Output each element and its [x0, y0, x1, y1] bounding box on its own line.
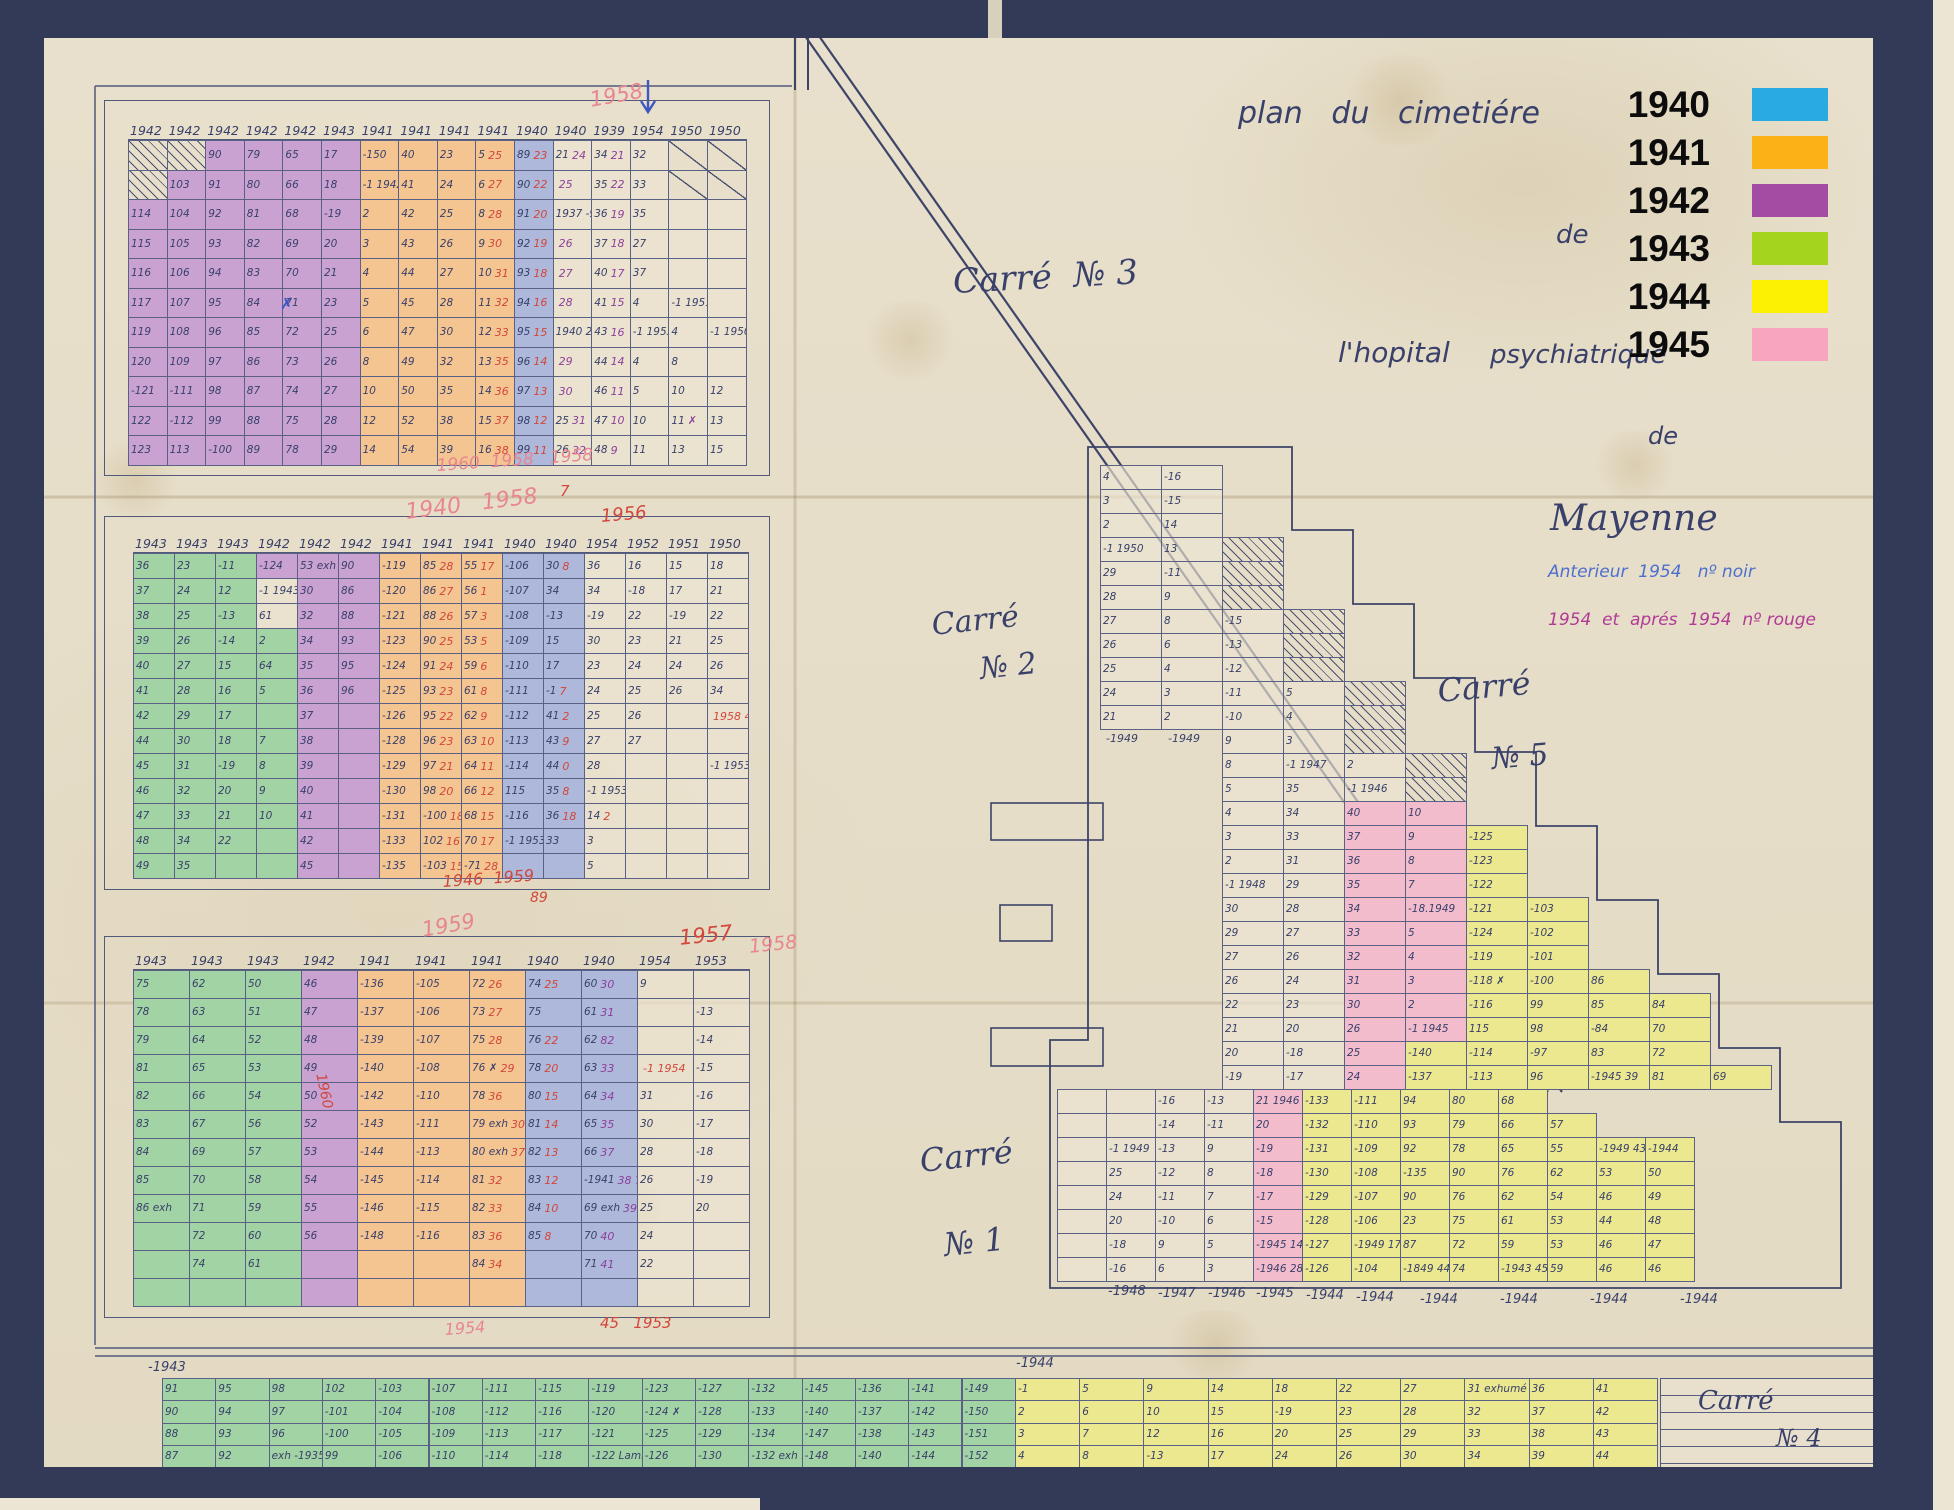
carre5-cell: -122: [1466, 873, 1528, 898]
grid-carre1-cell: -110: [413, 1082, 470, 1111]
strip-green-carre4-cell: -100: [322, 1423, 376, 1446]
grid-carre3-cell: 27: [630, 229, 670, 260]
grid-carre2-cell: 21: [215, 803, 257, 829]
grid-carre1-cell: 80 exh37: [469, 1138, 526, 1167]
grid-carre1-cell: 69: [189, 1138, 246, 1167]
grid-carre1-cell: 8132: [469, 1166, 526, 1195]
grid-carre2-cell: 24: [584, 678, 626, 704]
grid-carre2-cell: [625, 803, 667, 829]
grid-carre3-cell: 21: [321, 258, 361, 289]
carre5-cell: -123: [1466, 849, 1528, 874]
carre5-cell: 20: [1106, 1209, 1156, 1234]
grid-carre2-cell: -121: [379, 603, 421, 629]
strip-yellow-carre4-cell: -1: [1015, 1378, 1080, 1401]
grid-carre2-cell: 27: [625, 728, 667, 754]
carre5-cell: -18: [1253, 1161, 1303, 1186]
grid-carre1-year-header: 1942: [301, 948, 358, 970]
carre5-cell: 79: [1449, 1113, 1499, 1138]
grid-carre2-cell: 34: [707, 678, 749, 704]
grid-carre1-cell: 858: [525, 1222, 582, 1251]
grid-carre3-year-header: 1942: [167, 118, 207, 140]
grid-carre2-cell: 48: [133, 828, 175, 854]
grid-carre3-cell: 9416: [514, 288, 554, 319]
strip-green-carre4-cell: -128: [695, 1400, 749, 1423]
grid-carre2-cell: 440: [543, 753, 585, 779]
grid-carre3-cell: 26: [553, 229, 593, 260]
grid-carre2-cell: [707, 803, 749, 829]
grid-carre3-cell: 89: [244, 435, 284, 466]
carre5-cell: 27: [1100, 609, 1162, 634]
grid-carre3-cell: 106: [167, 258, 207, 289]
grid-carre2-cell: [256, 828, 298, 854]
grid-carre1-cell: 30: [637, 1110, 694, 1139]
carre5-cell: 8: [1161, 609, 1223, 634]
grid-carre3-cell: 35: [630, 199, 670, 230]
grid-carre2-cell: -106: [502, 553, 544, 579]
grid-carre2-cell: [666, 853, 708, 879]
grid-carre2-year-header: 1941: [420, 533, 462, 553]
strip-yellow-carre4-cell: 32: [1464, 1400, 1529, 1423]
strip-green-carre4-cell: -152: [962, 1445, 1016, 1468]
carre5-cell: 29: [1283, 873, 1345, 898]
carre5-cell: -16: [1161, 465, 1223, 490]
grid-carre3-cell: 29: [321, 435, 361, 466]
grid-carre1-cell: 7622: [525, 1026, 582, 1055]
strip-green-carre4-cell: 94: [215, 1400, 269, 1423]
grid-carre1-cell: 54: [245, 1082, 302, 1111]
grid-carre2-cell: 9323: [420, 678, 462, 704]
carre5-cell: 3: [1204, 1257, 1254, 1282]
carre5-cell: -1946 28: [1253, 1257, 1303, 1282]
grid-carre2-cell: 41: [297, 803, 339, 829]
grid-carre3-cell: 44: [398, 258, 438, 289]
grid-carre1-cell: [469, 1278, 526, 1307]
strip-green-carre4-cell: 87: [162, 1445, 216, 1468]
grid-carre2-cell: 25: [174, 603, 216, 629]
grid-carre1-cell: -148: [357, 1222, 414, 1251]
grid-carre3-cell: 1031: [475, 258, 515, 289]
grid-carre2-cell: [707, 853, 749, 879]
carre5-cell: -125: [1466, 825, 1528, 850]
grid-carre2-cell: [215, 853, 257, 879]
carre5-col-1945: -1945: [1256, 1286, 1294, 1301]
grid-carre2-cell: 40: [133, 653, 175, 679]
strip-green-carre4-cell: 97: [269, 1400, 323, 1423]
grid-carre3-year-header: 1950: [668, 118, 708, 140]
grid-carre3-cell: [707, 170, 747, 201]
grid-carre2-cell: 34: [297, 628, 339, 654]
grid-carre3-year-header: 1942: [244, 118, 284, 140]
grid-carre3-cell: 9614: [514, 347, 554, 378]
grid-carre2-cell: [256, 853, 298, 879]
carre5-cell: 34: [1283, 801, 1345, 826]
grid-carre3-cell: 84: [244, 288, 284, 319]
grid-carre2-year-header: 1942: [297, 533, 339, 553]
grid-carre3-cell: 119: [128, 317, 168, 348]
grid-carre2-cell: 23: [584, 653, 626, 679]
grid-carre2-cell: 26: [666, 678, 708, 704]
grid-carre2-year-header: 1951: [666, 533, 708, 553]
grid-carre2-cell: 42: [133, 703, 175, 729]
grid-carre1-cell: 20: [693, 1194, 750, 1223]
grid-carre1-cell: [133, 1250, 190, 1279]
grid-carre2-cell: 30: [584, 628, 626, 654]
grid-carre3-cell: 4: [360, 258, 400, 289]
strip-yellow-carre4-cell: 43: [1593, 1423, 1658, 1446]
grid-carre2-year-header: 1940: [502, 533, 544, 553]
strip-yellow-carre4-cell: 28: [1400, 1400, 1465, 1423]
grid-carre2-cell: [338, 703, 380, 729]
grid-carre2-cell: 41: [133, 678, 175, 704]
grid-carre2-cell: 22: [707, 603, 749, 629]
grid-carre2-cell: 9025: [420, 628, 462, 654]
strip-top-rules: [95, 1348, 1875, 1356]
grid-carre3-cell: 14: [360, 435, 400, 466]
carre5-cell: 4: [1161, 657, 1223, 682]
grid-carre3-cell: 8: [360, 347, 400, 378]
strip-green-carre4-cell: -145: [802, 1378, 856, 1401]
carre5-cell: 27: [1283, 921, 1345, 946]
grid-carre3-cell: 10: [668, 376, 708, 407]
carre5-col-1944e: -1944: [1590, 1292, 1628, 1307]
grid-carre1-cell: 79 exh30: [469, 1110, 526, 1139]
grid-carre2-cell: 412: [543, 703, 585, 729]
grid-carre3-cell: 8: [668, 347, 708, 378]
grid-carre2-cell: -110: [502, 653, 544, 679]
strip-yellow-carre4-cell: 10: [1143, 1400, 1208, 1423]
strip-green-carre4-cell: -121: [588, 1423, 642, 1446]
border-fold-gap: [988, 0, 1002, 38]
grid-carre3-cell: 30: [553, 376, 593, 407]
carre5-cell: -1945 14: [1253, 1233, 1303, 1258]
grid-carre1-cell: 60: [245, 1222, 302, 1251]
grid-carre1-cell: 81: [133, 1054, 190, 1083]
grid-carre1-cell: -107: [413, 1026, 470, 1055]
grid-carre3-cell: 1132: [475, 288, 515, 319]
carre5-cell: -108: [1351, 1161, 1401, 1186]
carre5-cell: 3: [1161, 681, 1223, 706]
carre5-cell: [1057, 1209, 1107, 1234]
grid-carre2-cell: 561: [461, 578, 503, 604]
grid-carre3-cell: 28: [437, 288, 477, 319]
note-after-1954: 1954 et aprés 1954 nº rouge: [1548, 610, 1816, 630]
carre5-cell: 4: [1222, 801, 1284, 826]
carre5-cell: 30: [1222, 897, 1284, 922]
grid-carre2-cell: [338, 853, 380, 879]
carre5-cell: 21: [1100, 705, 1162, 730]
monument-rect: [991, 803, 1103, 840]
grid-carre3-cell: 4316: [591, 317, 631, 348]
grid-carre2-cell: 88: [338, 603, 380, 629]
carre5-cell: 14: [1161, 513, 1223, 538]
grid-carre2-cell: -128: [379, 728, 421, 754]
grid-carre1-cell: 52: [245, 1026, 302, 1055]
strip-yellow-carre4-cell: 26: [1336, 1445, 1401, 1468]
carre5-cell: 30: [1344, 993, 1406, 1018]
grid-carre3-cell: 117: [128, 288, 168, 319]
grid-carre2-cell: 20: [215, 778, 257, 804]
grid-carre3-cell: 74: [282, 376, 322, 407]
title-hopital: l'hopital: [1338, 336, 1450, 369]
carre5-cell: 26: [1283, 945, 1345, 970]
grid-carre2-cell: 629: [461, 703, 503, 729]
strip-yellow-carre4-cell: 20: [1272, 1423, 1337, 1446]
carre5-cell: 2: [1100, 513, 1162, 538]
grid-carre3-cell: 4: [630, 347, 670, 378]
grid-carre2-cell: 5: [584, 853, 626, 879]
grid-carre1-cell: 8015: [525, 1082, 582, 1111]
grid-carre3-cell: 3: [360, 229, 400, 260]
strip-green-carre4-cell: -129: [695, 1423, 749, 1446]
carre5-cell: [1222, 561, 1284, 586]
strip-green-carre4-cell: 95: [215, 1378, 269, 1401]
grid-carre2-cell: -112: [502, 703, 544, 729]
carre5-cell: -100: [1527, 969, 1589, 994]
carre5-cell: 78: [1449, 1137, 1499, 1162]
strip-yellow-carre4-cell: 44: [1593, 1445, 1658, 1468]
carre5-cell: -15: [1222, 609, 1284, 634]
grid-carre2-cell: 25: [584, 703, 626, 729]
grid-carre1-cell: -194138 74: [581, 1166, 638, 1195]
grid-carre3-cell: [668, 229, 708, 260]
grid-carre3-cell: 4: [668, 317, 708, 348]
grid-carre3-cell: 93: [205, 229, 245, 260]
strip-yellow-carre4-cell: 9: [1143, 1378, 1208, 1401]
grid-carre2-cell: 23: [174, 553, 216, 579]
grid-carre2-cell: 6612: [461, 778, 503, 804]
grid-carre2-cell: 90: [338, 553, 380, 579]
grid-carre3-cell: 4017: [591, 258, 631, 289]
strip-green-carre4-cell: 99: [322, 1445, 376, 1468]
carre5-cell: -13: [1155, 1137, 1205, 1162]
carre5-cell: -103: [1527, 897, 1589, 922]
grid-carre1-cell: 78: [133, 998, 190, 1027]
grid-carre1-cell: 7425: [525, 970, 582, 999]
strip-green-carre4-cell: -142: [908, 1400, 962, 1423]
grid-carre3-cell: 105: [167, 229, 207, 260]
grid-carre2-cell: 142: [584, 803, 626, 829]
grid-carre2-cell: [625, 753, 667, 779]
grid-carre1-cell: 7040: [581, 1222, 638, 1251]
carre5-cell: -10: [1155, 1209, 1205, 1234]
red-89-below-carre2: 89: [530, 890, 548, 906]
carre5-cell: [1106, 1089, 1156, 1114]
grid-carre1-cell: 6131: [581, 998, 638, 1027]
monument-rect: [1000, 905, 1052, 941]
carre5-cell: [1057, 1233, 1107, 1258]
grid-carre3-cell: 2531: [553, 406, 593, 437]
strip-green-carre4-cell: -133: [748, 1400, 802, 1423]
strip-green-carre4-cell: -119: [588, 1378, 642, 1401]
grid-carre1-cell: 7528: [469, 1026, 526, 1055]
strip-green-carre4-cell: -140: [802, 1400, 856, 1423]
carre5-cell: -127: [1302, 1233, 1352, 1258]
grid-carre1-cell: 74: [189, 1250, 246, 1279]
grid-carre1-cell: 51: [245, 998, 302, 1027]
carre5-cell: -17: [1253, 1185, 1303, 1210]
grid-carre1-cell: -18: [693, 1138, 750, 1167]
grid-carre3-cell: 82: [244, 229, 284, 260]
legend-swatch-1940: [1752, 88, 1828, 121]
grid-carre2-cell: -123: [379, 628, 421, 654]
grid-carre2-cell: -13: [543, 603, 585, 629]
carre5-cell: -124: [1466, 921, 1528, 946]
carre5-cell: -19: [1253, 1137, 1303, 1162]
grid-carre2-cell: 36: [133, 553, 175, 579]
carre5-cell: 84: [1649, 993, 1711, 1018]
grid-carre3-cell: 85: [244, 317, 284, 348]
grid-carre1-cell: -111: [413, 1110, 470, 1139]
grid-carre1-cell: [245, 1278, 302, 1307]
grid-carre3-cell: 120: [128, 347, 168, 378]
label-carre-4: Carré: [1698, 1386, 1774, 1416]
grid-carre1-cell: [301, 1250, 358, 1279]
carre5-cell: 62: [1498, 1185, 1548, 1210]
grid-carre2-cell: 10: [256, 803, 298, 829]
grid-carre1-cell: 69 exh39: [581, 1194, 638, 1223]
grid-carre3-cell: 28: [553, 288, 593, 319]
strip-yellow-carre4-cell: 15: [1208, 1400, 1273, 1423]
grid-carre1-cell: 7820: [525, 1054, 582, 1083]
grid-carre2-cell: 35: [174, 853, 216, 879]
strip-green-carre4-cell: exh -1935: [269, 1445, 323, 1468]
carre5-cell: 5: [1204, 1233, 1254, 1258]
grid-carre1-cell: 56: [245, 1110, 302, 1139]
carre5-cell: [1106, 1113, 1156, 1138]
grid-carre3-cell: 54: [398, 435, 438, 466]
grid-carre2-cell: -116: [502, 803, 544, 829]
grid-carre2-cell: -1 1953: [502, 828, 544, 854]
grid-carre2-cell: 6815: [461, 803, 503, 829]
grid-carre2-cell: 42: [297, 828, 339, 854]
grid-carre2-cell: -10018: [420, 803, 462, 829]
strip-green-carre4-cell: -126: [642, 1445, 696, 1468]
strip-yellow-carre4-cell: 16: [1208, 1423, 1273, 1446]
carre5-cell: 5: [1283, 681, 1345, 706]
title-line1: plan du cimetiére: [1238, 96, 1540, 131]
strip-green-carre4-cell: -123: [642, 1378, 696, 1401]
grid-carre2-cell: 358: [543, 778, 585, 804]
grid-carre3-cell: 95: [205, 288, 245, 319]
carre5-cell: -1 1946: [1344, 777, 1406, 802]
strip-yellow-carre4-cell: 33: [1464, 1423, 1529, 1446]
border-top: [0, 0, 1954, 38]
grid-carre1-cell: -145: [357, 1166, 414, 1195]
grid-carre1-cell: 8233: [469, 1194, 526, 1223]
strip-green-carre4-cell: -141: [908, 1378, 962, 1401]
carre5-cell: -19: [1222, 1065, 1284, 1090]
strip-green-carre4-cell: 96: [269, 1423, 323, 1446]
strip-green-carre4-cell: 90: [162, 1400, 216, 1423]
grid-carre3-cell: 3421: [591, 140, 631, 171]
grid-carre1-cell: [413, 1278, 470, 1307]
carre5-cell: 93: [1400, 1113, 1450, 1138]
carre5-lbl-1949b: -1949: [1168, 732, 1200, 745]
grid-carre2-cell: 8: [256, 753, 298, 779]
grid-carre2-cell: -19: [666, 603, 708, 629]
grid-carre1-cell: 86 exh: [133, 1194, 190, 1223]
strip-green-carre4-cell: -117: [535, 1423, 589, 1446]
legend-swatch-1941: [1752, 136, 1828, 169]
grid-carre3-cell: -121: [128, 376, 168, 407]
grid-carre1-cell: 58: [245, 1166, 302, 1195]
carre5-cell: 2: [1344, 753, 1406, 778]
carre5-cell: 99: [1527, 993, 1589, 1018]
grid-carre2-cell: -124: [256, 553, 298, 579]
grid-carre2-cell: 18: [707, 553, 749, 579]
grid-carre1-cell: 52: [301, 1110, 358, 1139]
strip-green-carre4-cell: -148: [802, 1445, 856, 1468]
grid-carre1-cell: 6282: [581, 1026, 638, 1055]
carre5-cell: 7: [1405, 873, 1467, 898]
strip-green-carre4-cell: -132: [748, 1378, 802, 1401]
grid-carre1-cell: [413, 1250, 470, 1279]
strip-green-carre4-cell: 98: [269, 1378, 323, 1401]
grid-carre2-cell: 64: [256, 653, 298, 679]
grid-carre1-cell: 8312: [525, 1166, 582, 1195]
grid-carre3-year-header: 1942: [128, 118, 168, 140]
grid-carre2-cell: -1 1953: [707, 753, 749, 779]
carre5-cell: 20: [1253, 1113, 1303, 1138]
carre5-cell: 33: [1344, 921, 1406, 946]
carre5-col-1947: -1947: [1158, 1286, 1196, 1301]
grid-carre3-year-header: 1950: [707, 118, 747, 140]
grid-carre3-cell: 113: [167, 435, 207, 466]
cemetery-plan: 1942114115116117119120-12112212319421031…: [0, 0, 1954, 1510]
grid-carre1-cell: 48: [301, 1026, 358, 1055]
grid-carre2-cell: 10216: [420, 828, 462, 854]
grid-carre2-cell: [625, 853, 667, 879]
grid-carre1-year-header: 1940: [525, 948, 582, 970]
grid-carre2-cell: 26: [625, 703, 667, 729]
legend-year-1944: 1944: [1580, 276, 1710, 318]
grid-carre3-cell: [707, 347, 747, 378]
carre5-cell: 48: [1645, 1209, 1695, 1234]
carre5-cell: 35: [1283, 777, 1345, 802]
carre5-cell: 6: [1204, 1209, 1254, 1234]
carre5-cell: 59: [1498, 1233, 1548, 1258]
carre5-cell: -128: [1302, 1209, 1352, 1234]
grid-carre2-cell: 37: [297, 703, 339, 729]
grid-carre3-cell: 98: [205, 376, 245, 407]
grid-carre3-year-header: 1954: [630, 118, 670, 140]
carre5-col-1944a: -1944: [1306, 1288, 1344, 1303]
grid-carre2-cell: -124: [379, 653, 421, 679]
grid-carre1-cell: 6030: [581, 970, 638, 999]
carre5-cell: 53: [1547, 1233, 1597, 1258]
grid-carre2-cell: 618: [461, 678, 503, 704]
carre5-cell: [1283, 609, 1345, 634]
grid-carre2-cell: 24: [174, 578, 216, 604]
grid-carre1-cell: 54: [301, 1166, 358, 1195]
carre5-cell: -15: [1253, 1209, 1303, 1234]
grid-carre1-cell: [693, 1278, 750, 1307]
grid-carre3-cell: 10: [630, 406, 670, 437]
grid-carre3-cell: 87: [244, 376, 284, 407]
grid-carre3-cell: 49: [398, 347, 438, 378]
carre5-cell: 8: [1204, 1161, 1254, 1186]
carre5-cell: 25: [1344, 1041, 1406, 1066]
grid-carre1-cell: 53: [301, 1138, 358, 1167]
carre5-cell: 72: [1649, 1041, 1711, 1066]
strip-yellow-carre4-cell: 36: [1529, 1378, 1594, 1401]
grid-carre1-cell: 6535: [581, 1110, 638, 1139]
carre5-cell: -107: [1351, 1185, 1401, 1210]
grid-carre1-cell: 46: [301, 970, 358, 999]
grid-carre1-cell: -116: [413, 1222, 470, 1251]
strip-green-carre4-cell: -151: [962, 1423, 1016, 1446]
grid-carre3-cell: 23: [437, 140, 477, 171]
